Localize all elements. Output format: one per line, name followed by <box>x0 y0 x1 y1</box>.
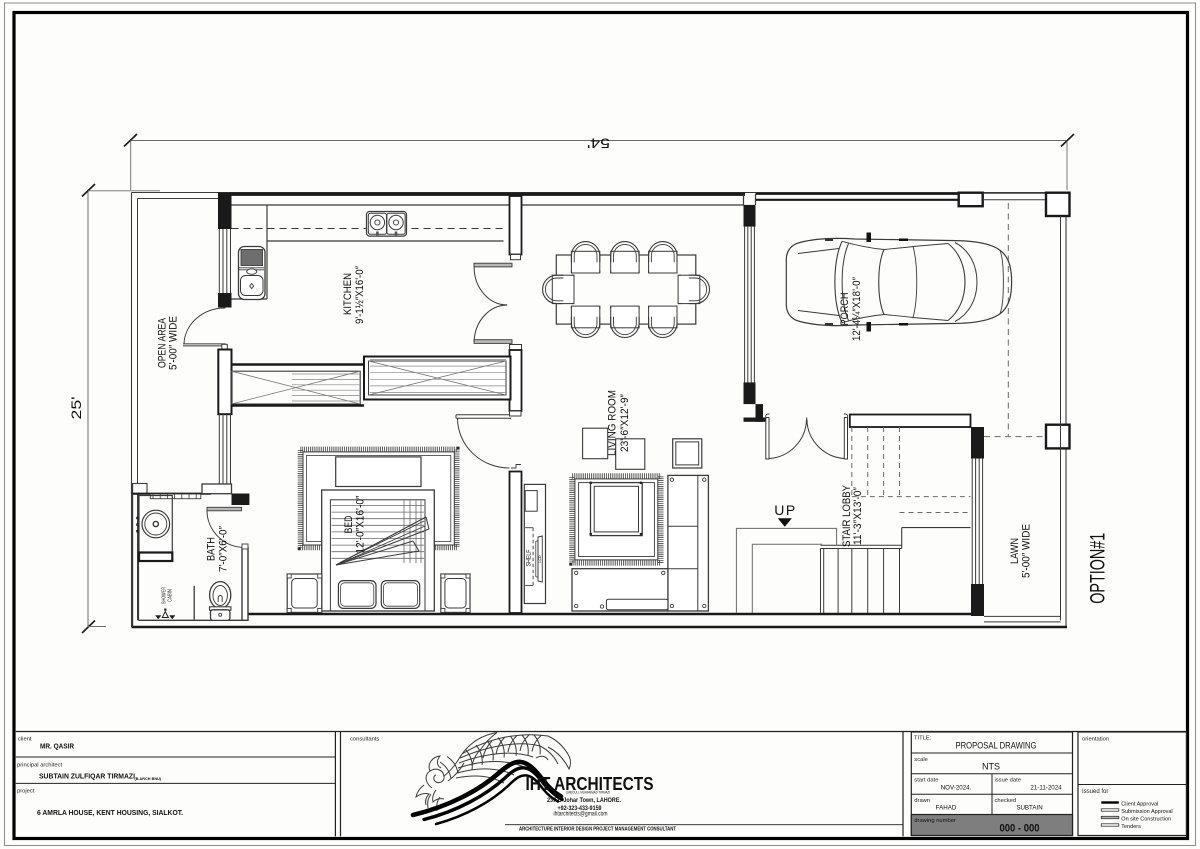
svg-text:orientation: orientation <box>1082 737 1109 743</box>
svg-text:On site Construction: On site Construction <box>1121 817 1171 823</box>
svg-text:start date: start date <box>914 778 938 784</box>
svg-text:UP: UP <box>774 502 796 518</box>
svg-text:ihtarchitects@gmail.com: ihtarchitects@gmail.com <box>554 812 608 818</box>
svg-text:PROPOSAL DRAWING: PROPOSAL DRAWING <box>956 741 1037 751</box>
svg-text:7'-0″X6'-0″: 7'-0″X6'-0″ <box>218 526 230 572</box>
svg-text:SHELF: SHELF <box>527 549 533 566</box>
svg-text:000 - 000: 000 - 000 <box>1000 823 1040 835</box>
svg-text:ARCHITECTURE INTERIOR DES: ARCHITECTURE INTERIOR DESIGN PROJECT MAN… <box>519 827 676 833</box>
svg-text:BED: BED <box>343 515 355 533</box>
svg-text:project: project <box>17 789 35 795</box>
svg-text:consultants: consultants <box>350 737 379 743</box>
svg-text:Client Approval: Client Approval <box>1121 802 1158 808</box>
svg-text:KITCHEN: KITCHEN <box>342 273 354 315</box>
svg-text:(SM)DULL MUHAMMAD TIRMAZI: (SM)DULL MUHAMMAD TIRMAZI <box>566 790 610 794</box>
svg-text:12'-0″X16'-0″: 12'-0″X16'-0″ <box>355 495 367 553</box>
svg-text:Submission Approval: Submission Approval <box>1121 809 1172 815</box>
svg-text:9'-1½″X16'-0″: 9'-1½″X16'-0″ <box>354 266 366 324</box>
svg-text:scale: scale <box>914 757 928 763</box>
svg-text:FAHAD: FAHAD <box>936 805 957 812</box>
svg-text:23'-6″X12'-9″: 23'-6″X12'-9″ <box>619 394 631 452</box>
svg-text:12'-4¼″X18'-0″: 12'-4¼″X18'-0″ <box>851 277 863 341</box>
svg-text:54': 54' <box>587 136 610 152</box>
svg-text:PORCH: PORCH <box>839 292 851 325</box>
svg-text:(B.ARCH BNU): (B.ARCH BNU) <box>135 777 162 781</box>
svg-text:TITLE:: TITLE: <box>914 736 932 742</box>
svg-text:OPTION#1: OPTION#1 <box>1087 533 1110 604</box>
svg-text:principal architect: principal architect <box>17 763 62 769</box>
svg-text:client: client <box>18 737 32 743</box>
svg-text:5'-00″ WIDE: 5'-00″ WIDE <box>168 316 180 370</box>
svg-text:CABIN: CABIN <box>168 589 174 602</box>
svg-text:SUBTAIN: SUBTAIN <box>1016 805 1042 812</box>
svg-text:237-C Johar Town, LAHORE.: 237-C Johar Town, LAHORE. <box>547 797 621 804</box>
svg-text:11'-3″X13'-0″: 11'-3″X13'-0″ <box>852 487 864 545</box>
svg-text:drawing number: drawing number <box>914 818 956 824</box>
svg-text:BATH: BATH <box>206 537 218 561</box>
svg-text:NTS: NTS <box>982 762 1000 772</box>
svg-text:LIVING ROOM: LIVING ROOM <box>607 390 619 456</box>
svg-text:NOV-2024.: NOV-2024. <box>941 785 972 792</box>
svg-text:5'-00″ WIDE: 5'-00″ WIDE <box>1021 524 1033 578</box>
svg-text:SUBTAIN ZULFIQAR TIRMAZI: SUBTAIN ZULFIQAR TIRMAZI <box>39 772 135 781</box>
svg-text:Tenders: Tenders <box>1121 824 1141 830</box>
svg-text:drawn: drawn <box>914 798 930 804</box>
svg-text:25': 25' <box>68 397 84 420</box>
svg-text:issue date: issue date <box>995 778 1021 784</box>
svg-text:21-11-2024: 21-11-2024 <box>1030 785 1062 792</box>
svg-text:MR. QASIR: MR. QASIR <box>40 742 74 751</box>
svg-text:Issued for: Issued for <box>1082 789 1108 795</box>
svg-text:LAWN: LAWN <box>1009 538 1021 564</box>
svg-text:LCD: LCD <box>538 555 542 562</box>
svg-text:6 AMRLA HOUSE, KENT HOUSING, S: 6 AMRLA HOUSE, KENT HOUSING, SIALKOT. <box>37 808 183 817</box>
svg-text:checked: checked <box>995 798 1017 804</box>
